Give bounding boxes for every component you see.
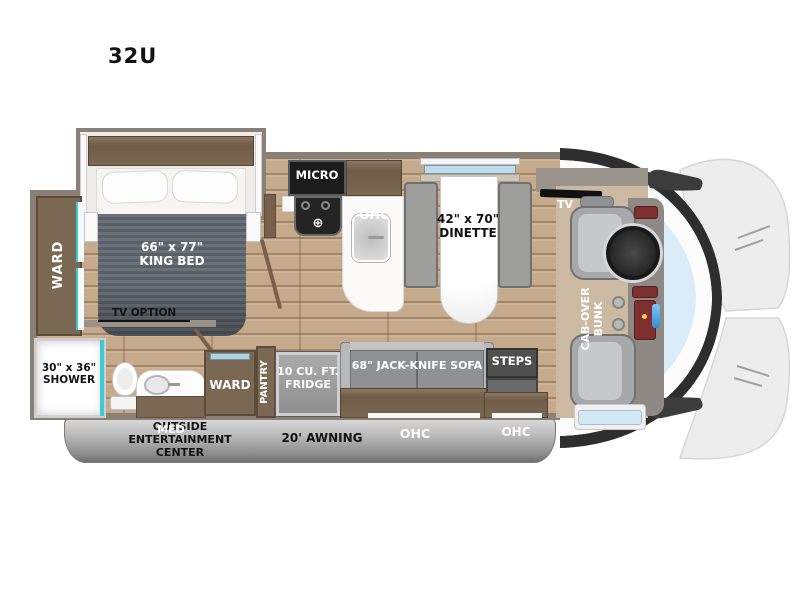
dash-panel-mid — [632, 286, 658, 298]
rv-floorplan: 32U OUTSIDE ENTERTAINMENT CENTER 20' AWN… — [0, 0, 800, 600]
entry-ohc-trim — [492, 413, 542, 418]
wardrobe-mirror-top — [76, 202, 84, 262]
entry-door-window — [578, 410, 642, 425]
tv-option-label: TV OPTION — [98, 307, 190, 322]
med-cabinet: MED — [136, 396, 206, 418]
pillow-left — [101, 170, 168, 204]
sofa-ohc-label: OHC — [400, 426, 430, 441]
pillow-right — [171, 170, 238, 204]
nightstand-left — [84, 212, 98, 242]
entry-ohc-label: OHC — [501, 425, 530, 439]
burner-knob-icon: ⊕ — [294, 216, 342, 231]
sofa-ohc-trim — [368, 413, 480, 418]
king-bed-label: 66" x 77" KING BED — [98, 240, 246, 268]
cupholder-bottom — [612, 318, 625, 331]
dinette-label: 42" x 70" DINETTE — [398, 212, 538, 240]
sink-faucet — [368, 236, 384, 239]
fridge-label: 10 CU. FT. FRIDGE — [276, 366, 340, 392]
nightstand-right — [246, 212, 261, 242]
shower-label: 30" x 36" SHOWER — [36, 362, 102, 387]
awning-label: 20' AWNING — [262, 431, 382, 445]
console-blue-screen — [652, 304, 660, 328]
burner-right — [321, 201, 330, 210]
bedroom-partition-wall — [264, 194, 276, 238]
dinette-window-sill — [420, 158, 520, 165]
rear-top-exterior — [22, 118, 82, 192]
burner-left — [301, 201, 310, 210]
sofa-label: 68" JACK-KNIFE SOFA — [338, 360, 496, 373]
dinette-table — [440, 176, 498, 324]
kitchen-ohc-label: OHC — [359, 207, 389, 222]
vanity-faucet — [168, 383, 180, 386]
steps-label: STEPS — [486, 355, 538, 369]
dinette-window — [424, 165, 516, 174]
cab-over-bunk-label: CAB-OVER BUNK — [580, 264, 608, 374]
kitchen-ohc-cabinet: OHC — [346, 160, 402, 196]
console-light-dot — [642, 314, 647, 319]
toilet-seat — [117, 368, 133, 390]
steering-wheel — [606, 226, 660, 280]
wardrobe-mirror-bottom — [76, 268, 84, 330]
hall-wardrobe-window — [210, 353, 250, 360]
micro-label: MICRO — [288, 169, 346, 183]
pantry-label: PANTRY — [259, 332, 273, 432]
sofa-backrest-bar — [350, 342, 484, 351]
page-title: 32U — [108, 44, 157, 69]
med-label: MED — [157, 423, 185, 436]
bedroom-ward-label: WARD — [51, 215, 67, 315]
bedroom-ohc-cabinet: OHC — [88, 136, 254, 166]
hall-ward-label: WARD — [204, 378, 256, 392]
slideout-rail-right — [255, 134, 262, 216]
dash-panel-top — [634, 206, 658, 219]
cupholder-top — [612, 296, 625, 309]
vanity-sink — [144, 375, 170, 395]
